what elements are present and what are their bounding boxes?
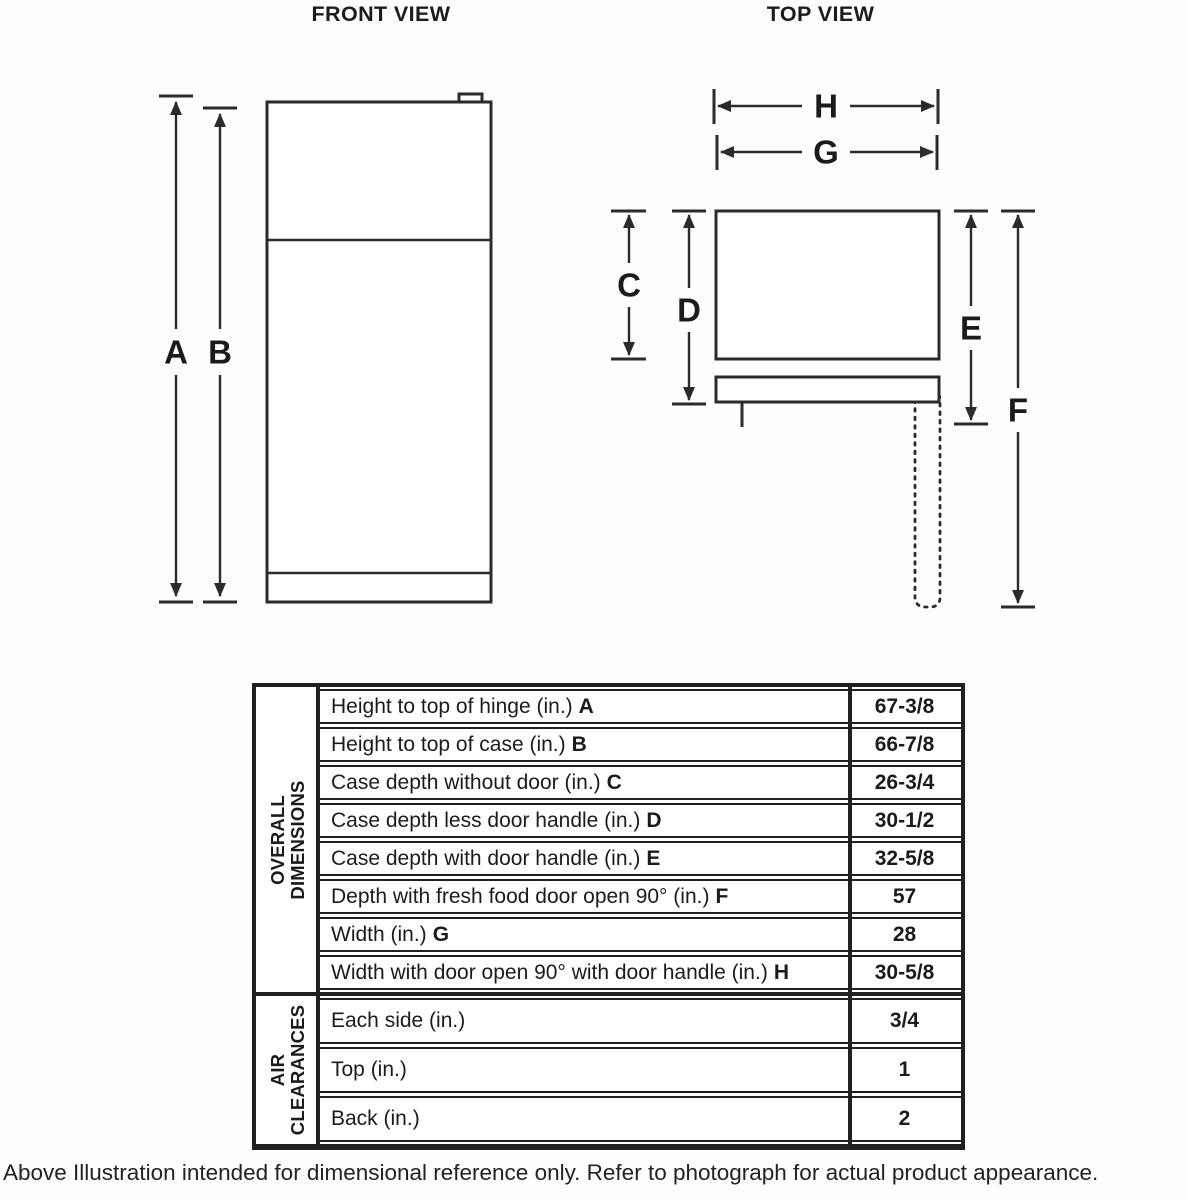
row-label-text: Case depth less door handle (in.) [331, 809, 640, 833]
row-value: 67-3/8 [848, 691, 961, 722]
dimension-e: E [954, 211, 988, 424]
dimensions-table: OVERALL DIMENSIONS Height to top of hing… [252, 683, 965, 1150]
row-label: Top (in.) [320, 1049, 848, 1091]
table-row: Width (in.)G 28 [320, 917, 961, 952]
row-label-text: Back (in.) [331, 1107, 420, 1131]
table-row: Case depth less door handle (in.)D 30-1/… [320, 803, 961, 838]
overall-header-line1: OVERALL [268, 780, 288, 899]
row-dim-letter: H [774, 961, 789, 985]
overall-rows: Height to top of hinge (in.)A 67-3/8 Hei… [320, 687, 961, 992]
row-label: Back (in.) [320, 1098, 848, 1140]
row-value: 66-7/8 [848, 729, 961, 760]
dim-label-g: G [813, 134, 839, 171]
top-view-drawing [716, 211, 940, 607]
row-label-text: Top (in.) [331, 1058, 407, 1082]
row-value: 1 [848, 1049, 961, 1091]
table-row: Case depth with door handle (in.)E 32-5/… [320, 841, 961, 876]
row-dim-letter: F [715, 885, 728, 909]
air-header-line1: AIR [268, 1005, 288, 1135]
row-label-text: Height to top of case (in.) [331, 733, 566, 757]
table-row: Width with door open 90° with door handl… [320, 955, 961, 990]
fridge-case-top [716, 211, 939, 359]
row-label-text: Each side (in.) [331, 1009, 465, 1033]
dimension-h: H [714, 88, 938, 125]
row-value: 26-3/4 [848, 767, 961, 798]
table-row: Each side (in.) 3/4 [320, 998, 961, 1044]
fridge-case-front [267, 102, 491, 602]
overall-dimensions-header: OVERALL DIMENSIONS [256, 687, 320, 992]
row-label: Case depth with door handle (in.)E [320, 843, 848, 874]
row-label-text: Height to top of hinge (in.) [331, 695, 573, 719]
dimension-b: B [203, 108, 237, 602]
row-label: Case depth less door handle (in.)D [320, 805, 848, 836]
dimension-f: F [1001, 211, 1035, 607]
row-dim-letter: E [646, 847, 660, 871]
row-label-text: Case depth without door (in.) [331, 771, 601, 795]
row-label-text: Width with door open 90° with door handl… [331, 961, 768, 985]
door-open-90-dashed-outline [915, 390, 940, 607]
table-row: Height to top of hinge (in.)A 67-3/8 [320, 689, 961, 724]
row-label: Case depth without door (in.)C [320, 767, 848, 798]
row-value: 3/4 [848, 1000, 961, 1042]
air-rows: Each side (in.) 3/4 Top (in.) 1 Back (in… [320, 996, 961, 1144]
row-dim-letter: C [607, 771, 622, 795]
dim-label-c: C [617, 267, 641, 304]
row-value: 30-1/2 [848, 805, 961, 836]
dim-label-e: E [960, 310, 982, 347]
row-label: Height to top of case (in.)B [320, 729, 848, 760]
dim-label-h: H [814, 88, 838, 125]
door-top-view [716, 377, 939, 402]
dimension-g: G [717, 134, 937, 171]
row-label-text: Depth with fresh food door open 90° (in.… [331, 885, 709, 909]
dimension-c: C [611, 211, 646, 359]
refrigerator-dimensions-spec-sheet: FRONT VIEW TOP VIEW A [0, 0, 1188, 1200]
table-row: Depth with fresh food door open 90° (in.… [320, 879, 961, 914]
hinge-tab [459, 94, 482, 102]
table-row: Case depth without door (in.)C 26-3/4 [320, 765, 961, 800]
dimension-diagram: A B H [0, 0, 1188, 670]
dim-label-f: F [1008, 392, 1028, 429]
row-dim-letter: G [433, 923, 449, 947]
dim-label-d: D [677, 292, 701, 329]
air-clearances-header: AIR CLEARANCES [256, 996, 320, 1144]
air-header-line2: CLEARANCES [288, 1005, 308, 1135]
row-label: Width with door open 90° with door handl… [320, 957, 848, 988]
dim-label-b: B [208, 334, 232, 371]
row-value: 28 [848, 919, 961, 950]
row-value: 30-5/8 [848, 957, 961, 988]
row-dim-letter: B [572, 733, 587, 757]
overall-dimensions-section: OVERALL DIMENSIONS Height to top of hing… [256, 687, 961, 992]
row-value: 32-5/8 [848, 843, 961, 874]
dimension-d: D [672, 211, 706, 404]
row-label: Width (in.)G [320, 919, 848, 950]
row-value: 2 [848, 1098, 961, 1140]
value-column-divider [848, 687, 852, 1144]
row-label-text: Case depth with door handle (in.) [331, 847, 640, 871]
table-row: Height to top of case (in.)B 66-7/8 [320, 727, 961, 762]
row-value: 57 [848, 881, 961, 912]
dim-label-a: A [164, 334, 188, 371]
row-label: Each side (in.) [320, 1000, 848, 1042]
overall-header-line2: DIMENSIONS [288, 780, 308, 899]
front-view-drawing [267, 94, 491, 602]
air-clearances-section: AIR CLEARANCES Each side (in.) 3/4 Top (… [256, 992, 961, 1144]
row-dim-letter: A [579, 695, 594, 719]
dimension-a: A [159, 96, 193, 602]
table-row: Top (in.) 1 [320, 1047, 961, 1093]
row-label-text: Width (in.) [331, 923, 427, 947]
label-column-divider [316, 687, 320, 1144]
footer-note: Above Illustration intended for dimensio… [3, 1160, 1187, 1186]
row-dim-letter: D [646, 809, 661, 833]
table-row: Back (in.) 2 [320, 1096, 961, 1142]
row-label: Depth with fresh food door open 90° (in.… [320, 881, 848, 912]
row-label: Height to top of hinge (in.)A [320, 691, 848, 722]
